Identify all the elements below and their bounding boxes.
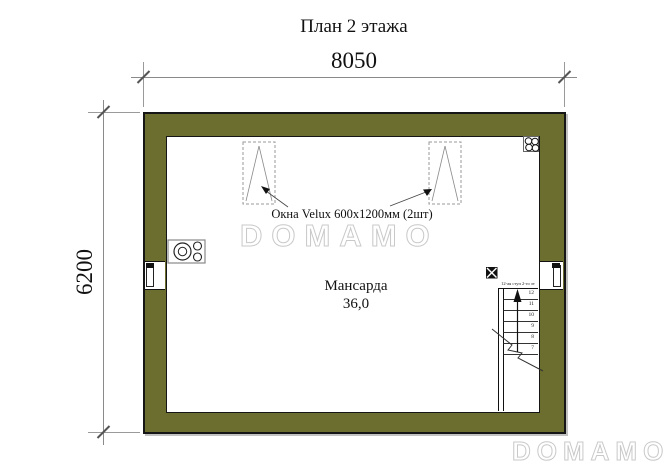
stair-step-number: 11 [522,302,534,308]
watermark-bottom: DOMAMO [512,436,665,467]
stair-step-number: 8 [522,335,534,341]
room-name: Мансарда [256,278,456,295]
velux-window-note: Окна Velux 600х1200мм (2шт) [222,207,482,222]
extension-line-top-right [564,62,565,107]
stair-step-number: 9 [522,324,534,330]
window-sash-icon [553,265,561,287]
page-title: План 2 этажа [143,16,565,38]
stair-step-number: 10 [522,313,534,319]
dimension-line-top [131,77,577,78]
room-area: 36,0 [256,296,456,313]
extension-line-left-bottom [88,432,140,433]
window-sash-cap [552,263,560,268]
stair-step-number: 12 [522,291,534,297]
stair-note: 12-ая ступ 2-го эт [498,281,538,286]
window-sash-icon [146,265,154,287]
window-opening-right [540,261,563,290]
floor-plan-canvas: План 2 этажа 8050 6200 DOMAMO [0,0,665,470]
dimension-width-label: 8050 [143,48,565,74]
stair-step-number: 7 [522,346,534,352]
attic-room [166,136,540,413]
extension-line-left-top [88,112,140,113]
dimension-line-left [103,100,104,445]
window-opening-left [145,261,165,290]
watermark-center: DOMAMO [240,218,439,254]
window-sash-cap [146,263,154,268]
dimension-height-label: 6200 [72,212,96,332]
extension-line-top-left [143,62,144,107]
